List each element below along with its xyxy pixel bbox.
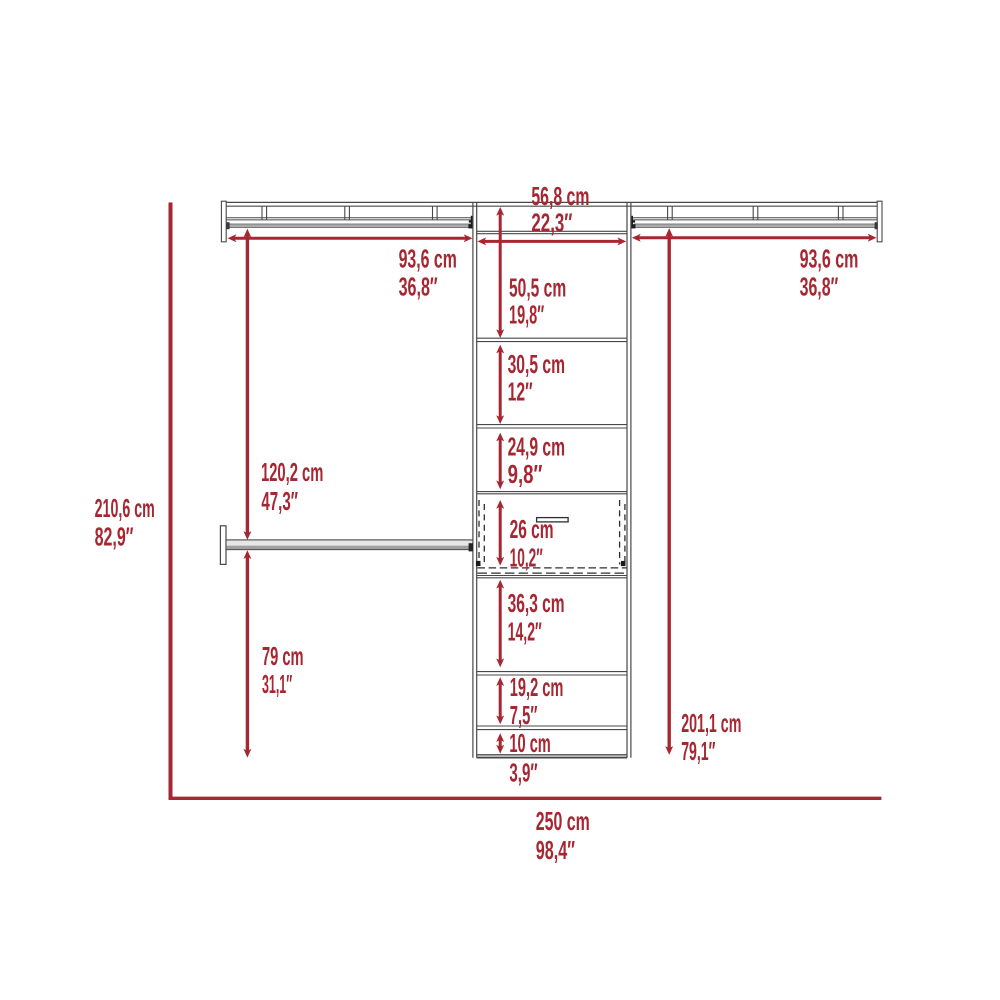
svg-text:19,2 cm: 19,2 cm <box>510 672 564 702</box>
svg-text:36,3 cm: 36,3 cm <box>508 588 565 618</box>
svg-text:79,1″: 79,1″ <box>681 736 715 766</box>
svg-text:14,2″: 14,2″ <box>508 616 542 646</box>
svg-text:19,8″: 19,8″ <box>509 300 544 330</box>
svg-text:12″: 12″ <box>508 377 533 407</box>
svg-text:10 cm: 10 cm <box>509 728 550 758</box>
svg-text:250 cm: 250 cm <box>536 806 590 836</box>
svg-text:30,5 cm: 30,5 cm <box>508 349 565 379</box>
svg-text:24,9 cm: 24,9 cm <box>508 432 565 462</box>
svg-text:22,3″: 22,3″ <box>531 208 572 238</box>
svg-text:120,2 cm: 120,2 cm <box>261 457 323 487</box>
svg-text:201,1 cm: 201,1 cm <box>681 708 741 738</box>
svg-text:47,3″: 47,3″ <box>261 486 298 516</box>
svg-text:3,9″: 3,9″ <box>509 758 537 788</box>
svg-text:26 cm: 26 cm <box>510 514 554 544</box>
svg-text:10,2″: 10,2″ <box>510 543 543 573</box>
svg-text:36,8″: 36,8″ <box>399 271 438 301</box>
svg-text:50,5 cm: 50,5 cm <box>509 273 566 303</box>
svg-text:31,1″: 31,1″ <box>262 669 292 699</box>
svg-text:93,6 cm: 93,6 cm <box>800 243 859 273</box>
svg-text:98,4″: 98,4″ <box>536 835 575 865</box>
svg-text:56,8 cm: 56,8 cm <box>531 181 589 211</box>
svg-text:7,5″: 7,5″ <box>510 700 538 730</box>
svg-text:9,8″: 9,8″ <box>508 459 543 489</box>
svg-text:93,6 cm: 93,6 cm <box>399 243 457 273</box>
svg-text:82,9″: 82,9″ <box>95 522 134 552</box>
svg-text:36,8″: 36,8″ <box>800 271 839 301</box>
svg-text:79 cm: 79 cm <box>262 641 304 671</box>
svg-text:210,6 cm: 210,6 cm <box>95 493 155 523</box>
